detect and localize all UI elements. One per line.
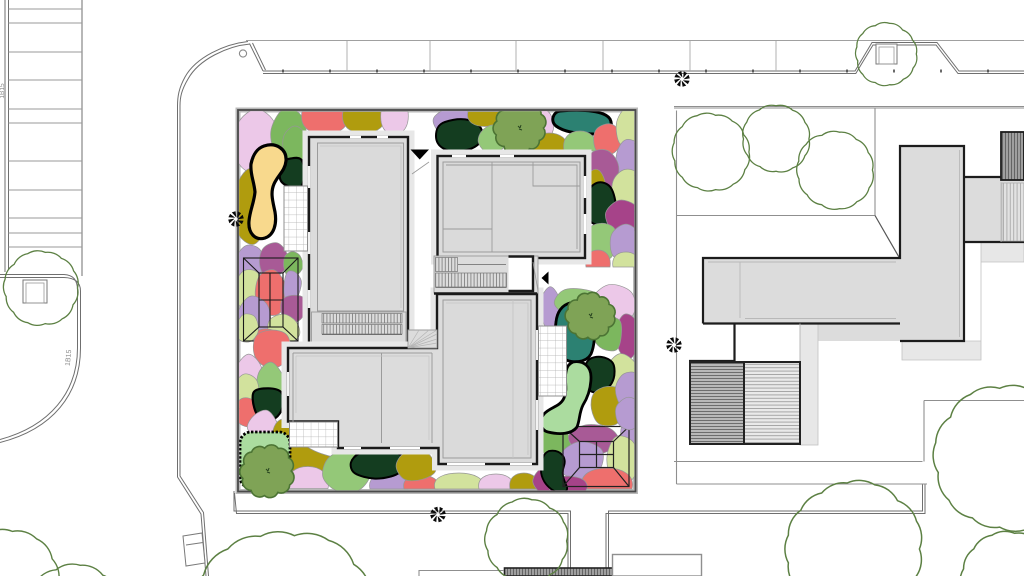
svg-text:1B15: 1B15 bbox=[0, 83, 6, 99]
svg-text:1B15: 1B15 bbox=[65, 349, 73, 366]
